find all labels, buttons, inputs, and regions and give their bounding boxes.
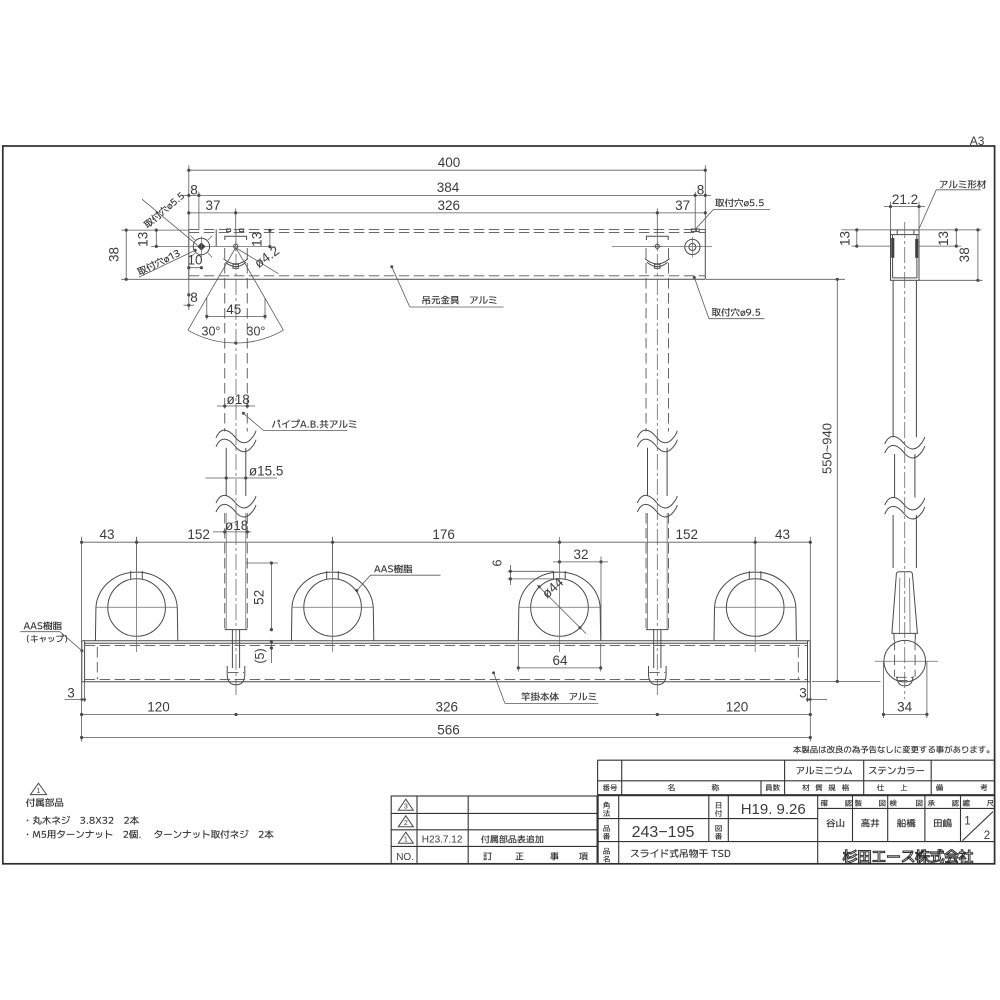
svg-text:3: 3	[404, 804, 408, 811]
svg-text:2: 2	[404, 820, 408, 827]
svg-text:1: 1	[964, 816, 970, 828]
svg-text:21.2: 21.2	[892, 192, 918, 207]
svg-text:ø18: ø18	[227, 392, 250, 407]
svg-text:ø18: ø18	[225, 518, 248, 533]
svg-text:52: 52	[252, 590, 267, 605]
svg-text:6: 6	[491, 559, 505, 566]
svg-text:45: 45	[226, 302, 241, 317]
svg-text:3: 3	[67, 686, 75, 701]
svg-text:43: 43	[99, 527, 114, 542]
svg-text:1: 1	[37, 788, 41, 795]
svg-text:37: 37	[205, 198, 220, 213]
svg-text:152: 152	[676, 527, 699, 542]
svg-text:13: 13	[838, 231, 853, 246]
svg-text:120: 120	[147, 700, 170, 715]
svg-text:1: 1	[404, 837, 408, 844]
svg-text:120: 120	[726, 700, 749, 715]
svg-text:37: 37	[675, 198, 690, 213]
svg-text:566: 566	[437, 722, 460, 737]
svg-text:30°: 30°	[202, 325, 221, 339]
svg-text:550~940: 550~940	[820, 423, 835, 474]
svg-text:326: 326	[436, 700, 459, 715]
svg-text:243−195: 243−195	[632, 824, 695, 841]
svg-text:326: 326	[438, 198, 461, 213]
svg-text:8: 8	[190, 290, 198, 305]
svg-text:8: 8	[190, 182, 198, 197]
svg-text:30°: 30°	[247, 325, 266, 339]
svg-text:13: 13	[136, 232, 151, 247]
svg-text:2: 2	[984, 830, 990, 842]
svg-text:(5): (5)	[253, 648, 267, 663]
svg-text:38: 38	[106, 247, 121, 262]
svg-text:13: 13	[936, 231, 951, 246]
svg-text:H23.7.12: H23.7.12	[422, 835, 463, 846]
svg-text:384: 384	[437, 180, 460, 195]
svg-text:400: 400	[438, 155, 461, 170]
svg-text:176: 176	[432, 527, 455, 542]
svg-text:ø15.5: ø15.5	[249, 463, 284, 478]
svg-text:H19. 9.26: H19. 9.26	[741, 801, 806, 818]
svg-text:13: 13	[249, 232, 264, 247]
svg-text:NO.: NO.	[396, 852, 414, 863]
svg-text:32: 32	[573, 547, 588, 562]
svg-text:34: 34	[897, 700, 913, 715]
svg-text:A3: A3	[970, 134, 985, 148]
svg-text:64: 64	[552, 653, 568, 668]
svg-text:10: 10	[187, 253, 202, 268]
svg-text:3: 3	[799, 686, 807, 701]
svg-text:38: 38	[957, 247, 972, 262]
svg-text:8: 8	[697, 182, 705, 197]
svg-text:152: 152	[187, 527, 210, 542]
svg-text:43: 43	[775, 527, 790, 542]
